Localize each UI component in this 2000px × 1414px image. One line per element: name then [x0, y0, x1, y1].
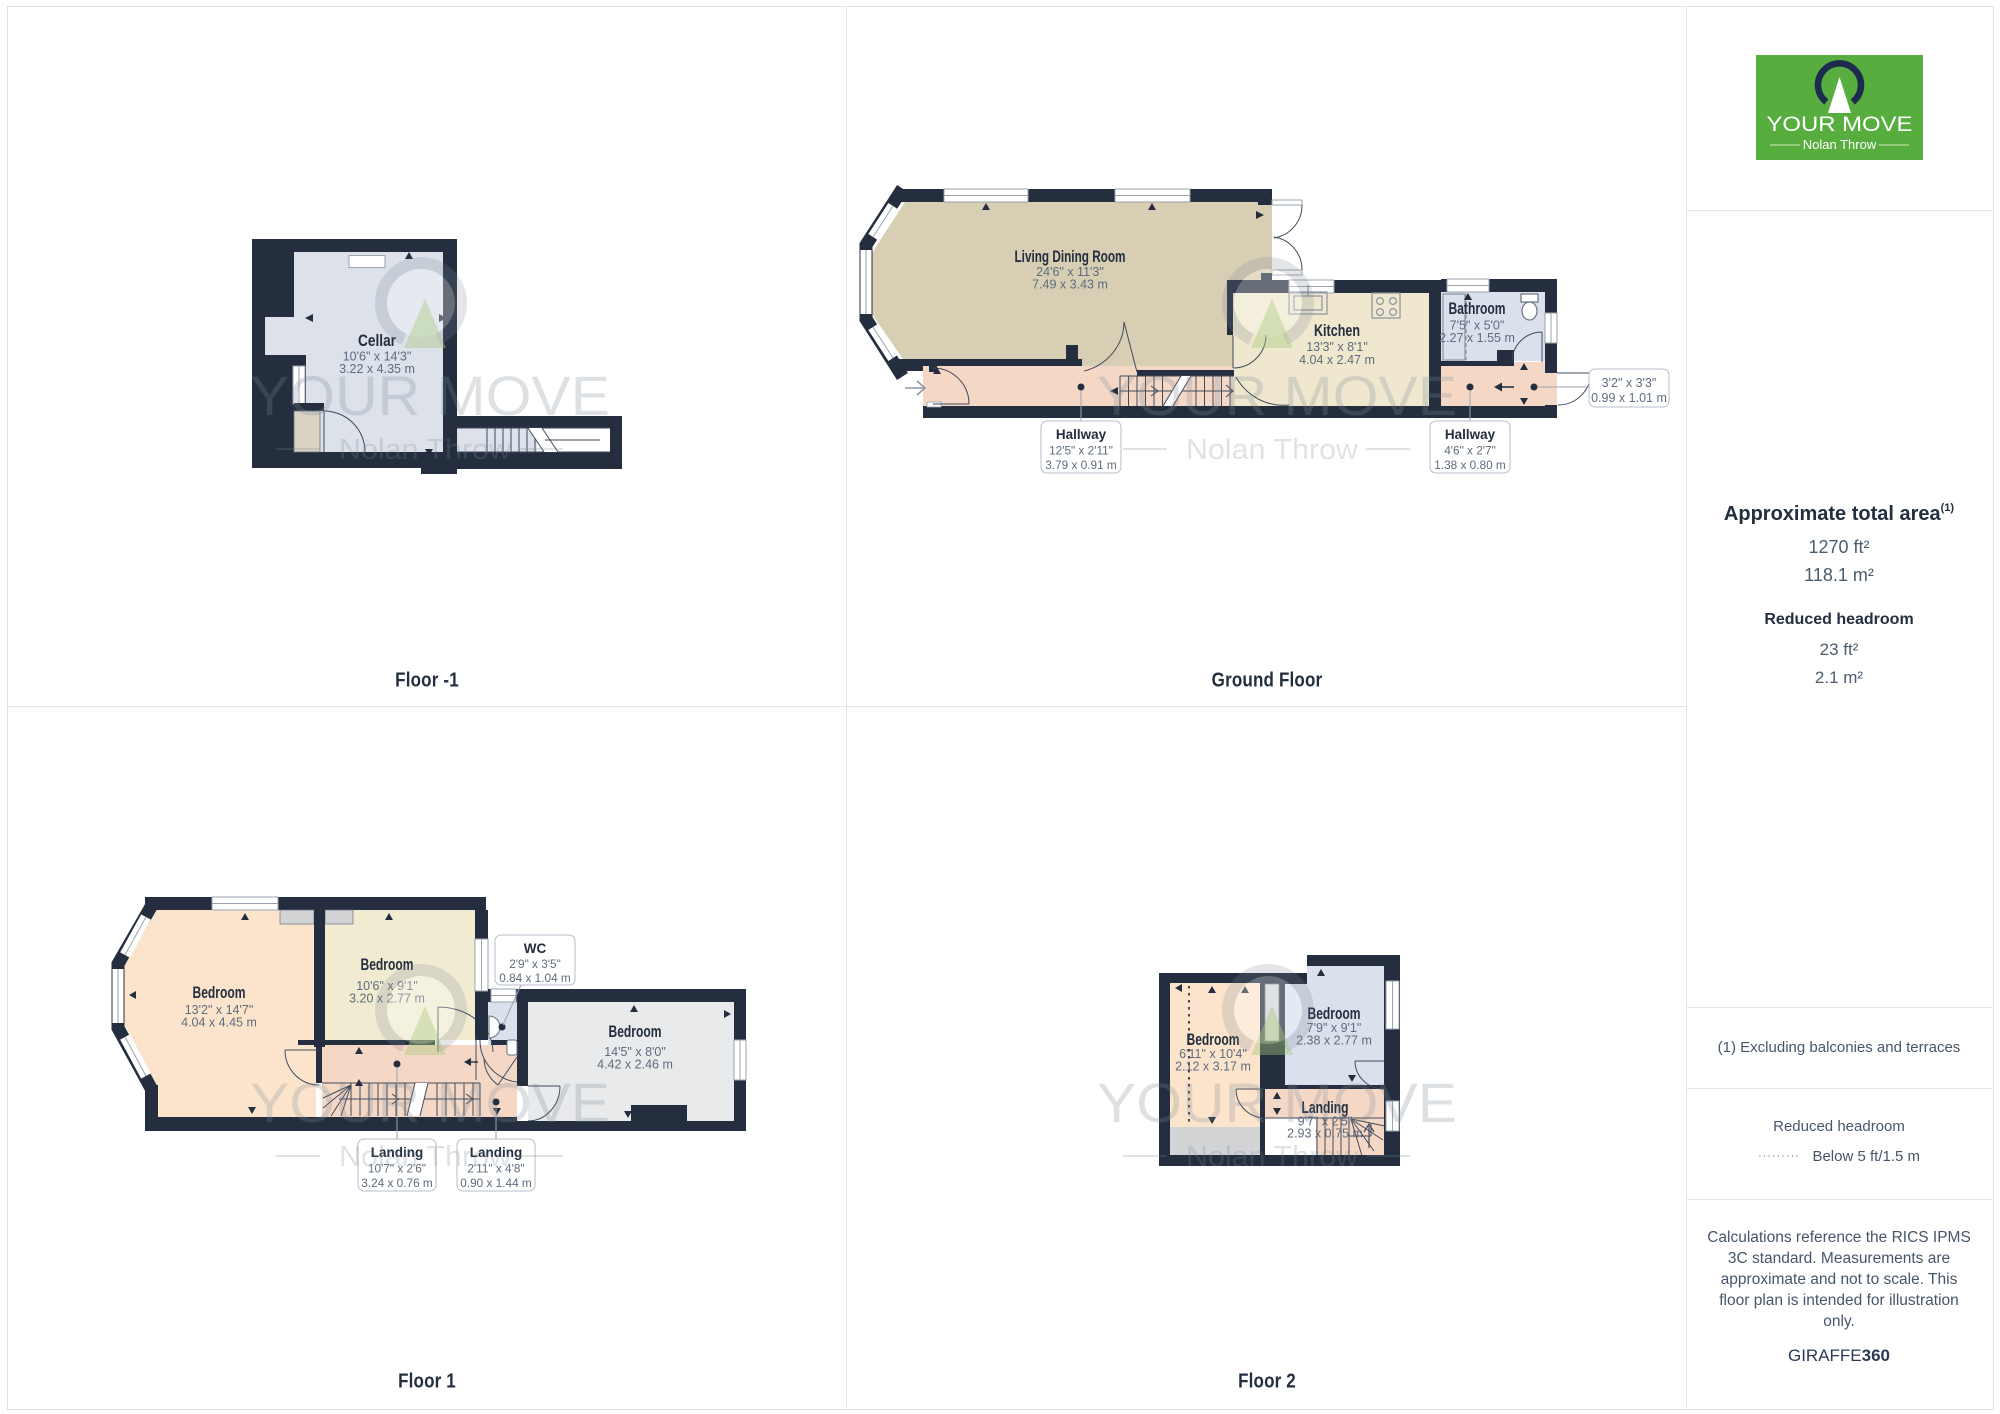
- svg-text:0.99 x 1.01 m: 0.99 x 1.01 m: [1591, 391, 1667, 405]
- svg-text:4.04 x 4.45 m: 4.04 x 4.45 m: [181, 1016, 257, 1030]
- svg-text:Bedroom: Bedroom: [193, 984, 246, 1002]
- svg-text:4.42 x 2.46 m: 4.42 x 2.46 m: [597, 1058, 673, 1072]
- svg-text:Bathroom: Bathroom: [1449, 300, 1506, 318]
- svg-text:1.38 x 0.80 m: 1.38 x 0.80 m: [1434, 458, 1506, 472]
- svg-text:3.79 x 0.91 m: 3.79 x 0.91 m: [1045, 458, 1117, 472]
- svg-text:2.38 x 2.77 m: 2.38 x 2.77 m: [1296, 1034, 1372, 1048]
- svg-text:Living Dining Room: Living Dining Room: [1015, 248, 1126, 266]
- svg-text:Bedroom: Bedroom: [609, 1023, 662, 1041]
- svg-text:Hallway: Hallway: [1056, 427, 1107, 442]
- svg-text:12'5" x 2'11": 12'5" x 2'11": [1049, 444, 1113, 458]
- svg-text:YOUR MOVE: YOUR MOVE: [1767, 113, 1913, 136]
- svg-text:13'3" x 8'1": 13'3" x 8'1": [1306, 340, 1368, 354]
- svg-text:2.27 x 1.55 m: 2.27 x 1.55 m: [1439, 331, 1515, 345]
- svg-text:4'6" x 2'7": 4'6" x 2'7": [1444, 444, 1496, 458]
- svg-text:3'2" x 3'3": 3'2" x 3'3": [1602, 376, 1657, 390]
- svg-text:0.84 x 1.04 m: 0.84 x 1.04 m: [499, 971, 571, 985]
- svg-text:7.49 x 3.43 m: 7.49 x 3.43 m: [1032, 278, 1108, 292]
- svg-text:3.24 x 0.76 m: 3.24 x 0.76 m: [361, 1176, 433, 1190]
- svg-text:2'9" x 3'5": 2'9" x 3'5": [509, 957, 561, 971]
- svg-text:Hallway: Hallway: [1445, 427, 1496, 442]
- svg-text:Nolan Throw: Nolan Throw: [1803, 137, 1877, 152]
- svg-text:WC: WC: [524, 941, 547, 956]
- svg-text:0.90 x 1.44 m: 0.90 x 1.44 m: [460, 1176, 532, 1190]
- svg-text:Kitchen: Kitchen: [1314, 322, 1360, 340]
